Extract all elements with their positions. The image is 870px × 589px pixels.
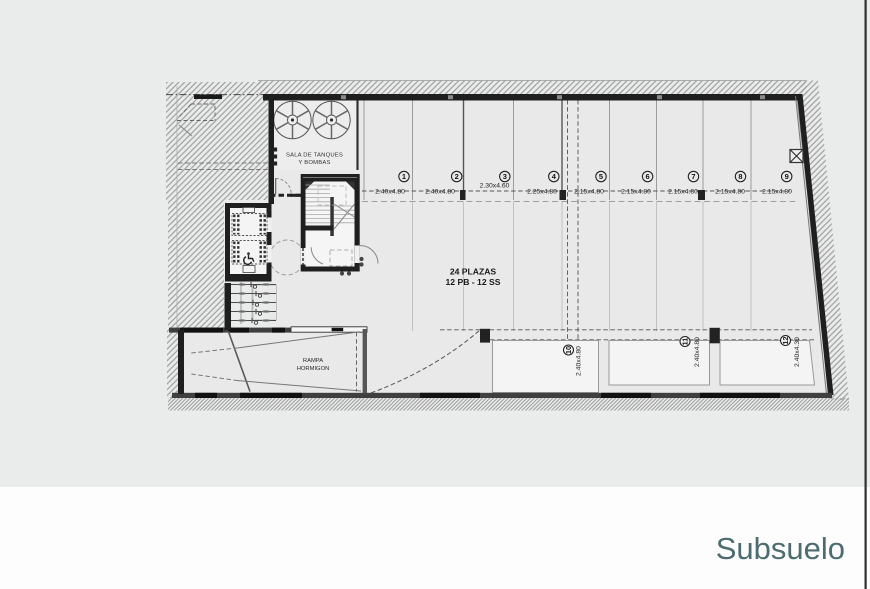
svg-text:5: 5	[599, 172, 603, 181]
svg-text:SALA DE TANQUES: SALA DE TANQUES	[286, 152, 343, 158]
svg-text:7: 7	[691, 172, 695, 181]
svg-text:HORMIGON: HORMIGON	[297, 366, 330, 372]
svg-text:2.40x4.30: 2.40x4.30	[794, 337, 801, 367]
svg-text:2.15x4.80: 2.15x4.80	[574, 188, 604, 195]
svg-text:2.40x4.80: 2.40x4.80	[375, 188, 405, 195]
svg-text:2.30x4.60: 2.30x4.60	[480, 183, 510, 190]
svg-text:8: 8	[738, 172, 742, 181]
svg-text:11: 11	[681, 338, 690, 346]
svg-text:12 PB - 12 SS: 12 PB - 12 SS	[446, 277, 501, 287]
svg-text:2.15x4.80: 2.15x4.80	[621, 188, 651, 195]
svg-text:2.15x4.80: 2.15x4.80	[715, 188, 745, 195]
svg-text:2.40x4.80: 2.40x4.80	[694, 337, 701, 367]
svg-text:24 PLAZAS: 24 PLAZAS	[450, 267, 497, 277]
svg-text:2: 2	[455, 172, 459, 181]
svg-text:2.15x4.80: 2.15x4.80	[668, 188, 698, 195]
svg-text:2.40x4.80: 2.40x4.80	[425, 188, 455, 195]
svg-text:2.40x4.80: 2.40x4.80	[576, 346, 583, 376]
svg-text:1: 1	[402, 172, 406, 181]
svg-text:3: 3	[503, 172, 507, 181]
svg-text:10: 10	[564, 346, 573, 354]
svg-text:2.15x4.80: 2.15x4.80	[762, 188, 792, 195]
svg-text:Subsuelo: Subsuelo	[716, 531, 845, 566]
svg-text:2.25x4.80: 2.25x4.80	[527, 188, 557, 195]
svg-text:9: 9	[785, 172, 789, 181]
svg-text:12: 12	[781, 337, 790, 345]
svg-text:RAMPA: RAMPA	[303, 358, 323, 364]
svg-text:6: 6	[646, 172, 650, 181]
svg-text:Y BOMBAS: Y BOMBAS	[298, 160, 330, 166]
